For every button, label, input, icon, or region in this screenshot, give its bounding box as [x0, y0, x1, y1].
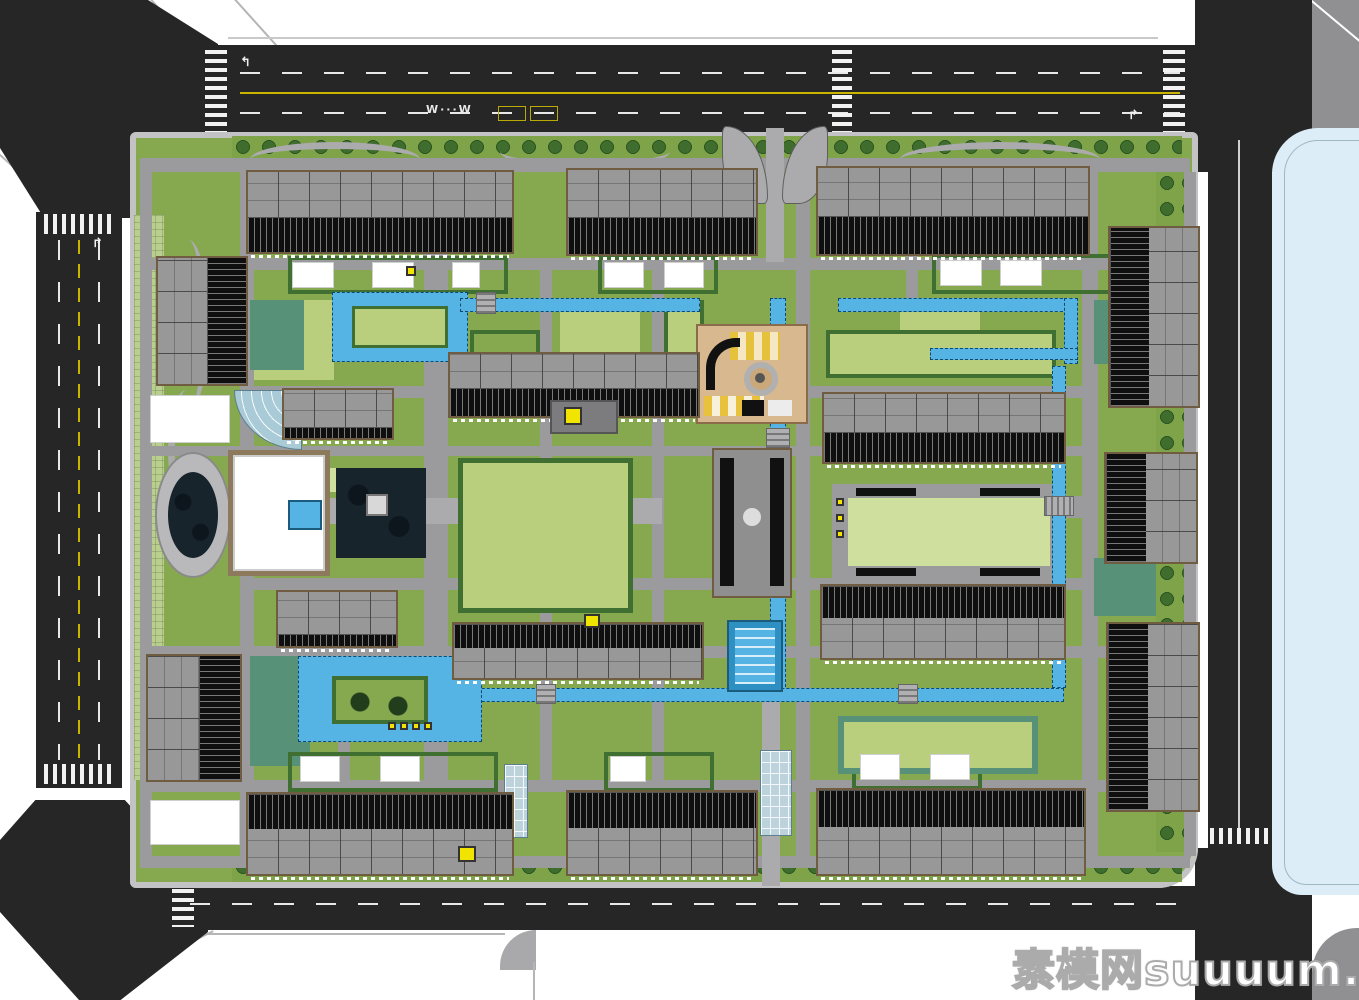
shrub-patch: [250, 300, 304, 370]
road-east: [1208, 128, 1272, 888]
lake-island: [332, 676, 428, 724]
building-roof: [1146, 454, 1196, 562]
bridge: [476, 292, 496, 314]
paved-gap: [610, 756, 646, 782]
building-facade: [248, 794, 512, 829]
site-plan-canvas: W···W ↰ ↱ ↱: [0, 0, 1359, 1000]
building-facade: [1110, 228, 1149, 406]
vent-grate: [856, 568, 916, 576]
residential-tower: [1104, 452, 1198, 564]
internal-path: [796, 172, 810, 856]
paved-gap: [1000, 260, 1042, 286]
crosswalk: [44, 214, 116, 234]
bridge: [1044, 496, 1074, 516]
reflecting-pool: [288, 500, 322, 530]
building-roof: [818, 827, 1084, 874]
accent-marker: [412, 722, 420, 730]
roof-dark-band: [770, 458, 784, 586]
residential-tower: [146, 654, 242, 782]
oval-water-garden: [168, 472, 218, 558]
building-facade: [278, 634, 396, 646]
parcel-boundary-line: [205, 933, 505, 935]
lane-line: [98, 240, 100, 760]
building-facade: [822, 586, 1064, 618]
residential-building: [246, 170, 514, 254]
building-roof: [148, 656, 199, 780]
building-roof: [568, 828, 756, 874]
residential-building: [276, 590, 398, 648]
building-roof: [284, 390, 392, 427]
building-roof: [822, 618, 1064, 658]
central-courtyard: [458, 458, 633, 613]
residential-building: [246, 792, 514, 876]
lane-line: [240, 72, 1180, 74]
bridge: [898, 684, 918, 704]
crosswalk: [1210, 828, 1270, 844]
canal: [460, 298, 700, 312]
residential-building: [816, 788, 1086, 876]
annex-building: [550, 400, 618, 434]
sidewalk-fillet: [500, 930, 536, 970]
internal-path: [652, 268, 664, 788]
building-roof: [450, 354, 698, 388]
building-facade: [199, 656, 240, 780]
paved-gap: [300, 756, 340, 782]
building-roof: [818, 168, 1088, 216]
residential-building: [282, 388, 394, 440]
center-line-yellow: [240, 92, 1180, 94]
fountain-deck: [366, 494, 388, 516]
lap-pool-lanes: [735, 628, 775, 684]
bus-stop-box: [530, 106, 558, 121]
sidewalk-edge-line: [228, 37, 1158, 39]
lane-line: [240, 112, 1180, 114]
building-facade: [818, 790, 1084, 827]
bus-stop-road-marking: W···W: [426, 103, 473, 116]
building-roof: [248, 172, 512, 217]
lane-line: [190, 903, 1180, 905]
building-facade: [1106, 454, 1146, 562]
paved-gap: [604, 262, 644, 288]
canal-island: [352, 306, 448, 348]
crosswalk: [205, 50, 227, 132]
building-roof: [158, 258, 207, 384]
paved-gap: [452, 262, 480, 288]
watermark: 素模网suuuum.com: [1012, 936, 1359, 998]
center-line-yellow: [78, 240, 80, 760]
roof-dark-band: [720, 458, 734, 586]
play-spiral-center: [755, 373, 765, 383]
paved-gap: [292, 262, 334, 288]
paved-plaza: [150, 395, 230, 443]
bus-stop-box: [498, 106, 526, 121]
crosswalk: [1163, 50, 1185, 132]
adjacent-parcel-outline: [1284, 140, 1359, 885]
bridge: [766, 428, 790, 448]
roof-skylight: [743, 508, 761, 526]
shrub-patch: [1094, 558, 1156, 616]
bridge: [536, 684, 556, 704]
building-facade: [207, 258, 246, 384]
building-facade: [568, 792, 756, 828]
building-facade: [1108, 624, 1148, 810]
parcel-boundary-line: [533, 962, 535, 1000]
building-facade: [818, 216, 1088, 254]
east-court-lawn: [848, 498, 1050, 566]
residential-building: [566, 790, 758, 876]
building-facade: [248, 217, 512, 252]
building-roof: [824, 394, 1064, 432]
accent-marker: [836, 530, 844, 538]
building-facade: [824, 432, 1064, 462]
glass-canopy-south-entry: [760, 750, 792, 836]
building-roof: [568, 170, 756, 217]
paved-gap: [930, 754, 970, 780]
residential-tower: [156, 256, 248, 386]
canal: [838, 298, 1078, 312]
vent-grate: [980, 488, 1040, 496]
crosswalk: [44, 764, 116, 784]
accent-marker: [400, 722, 408, 730]
crosswalk: [172, 889, 194, 927]
paved-gap: [664, 262, 704, 288]
turn-arrow: ↰: [240, 55, 251, 70]
paved-gap: [940, 260, 982, 286]
residential-tower: [1106, 622, 1200, 812]
lane-line: [58, 240, 60, 760]
paved-gap: [380, 756, 420, 782]
building-roof: [454, 648, 702, 678]
building-roof: [1148, 624, 1198, 810]
building-roof: [278, 592, 396, 634]
building-facade: [568, 217, 756, 254]
skylight-yellow: [584, 614, 600, 628]
skylight-yellow: [564, 407, 582, 425]
accent-marker: [406, 266, 416, 276]
residential-building: [816, 166, 1090, 256]
canal: [930, 348, 1078, 360]
play-mat-dark: [742, 400, 764, 416]
residential-building: [452, 622, 704, 680]
road-south: [118, 886, 1195, 930]
amenity-building: [712, 448, 792, 598]
residential-building: [822, 392, 1066, 464]
vent-grate: [980, 568, 1040, 576]
paved-gap: [860, 754, 900, 780]
residential-building: [820, 584, 1066, 660]
vent-grate: [856, 488, 916, 496]
residential-building: [566, 168, 758, 256]
road-north: [215, 45, 1195, 135]
skylight-yellow: [458, 846, 476, 862]
accent-marker: [388, 722, 396, 730]
paved-plaza: [150, 800, 240, 845]
accent-marker: [424, 722, 432, 730]
turn-arrow: ↱: [1128, 108, 1139, 123]
building-roof: [1149, 228, 1198, 406]
turn-arrow: ↱: [92, 236, 103, 251]
accent-marker: [836, 498, 844, 506]
accent-marker: [836, 514, 844, 522]
building-facade: [454, 624, 702, 648]
play-mat-light: [768, 400, 792, 416]
crosswalk: [832, 50, 852, 132]
residential-tower: [1108, 226, 1200, 408]
lane-line: [1238, 140, 1240, 840]
building-facade: [284, 427, 392, 438]
